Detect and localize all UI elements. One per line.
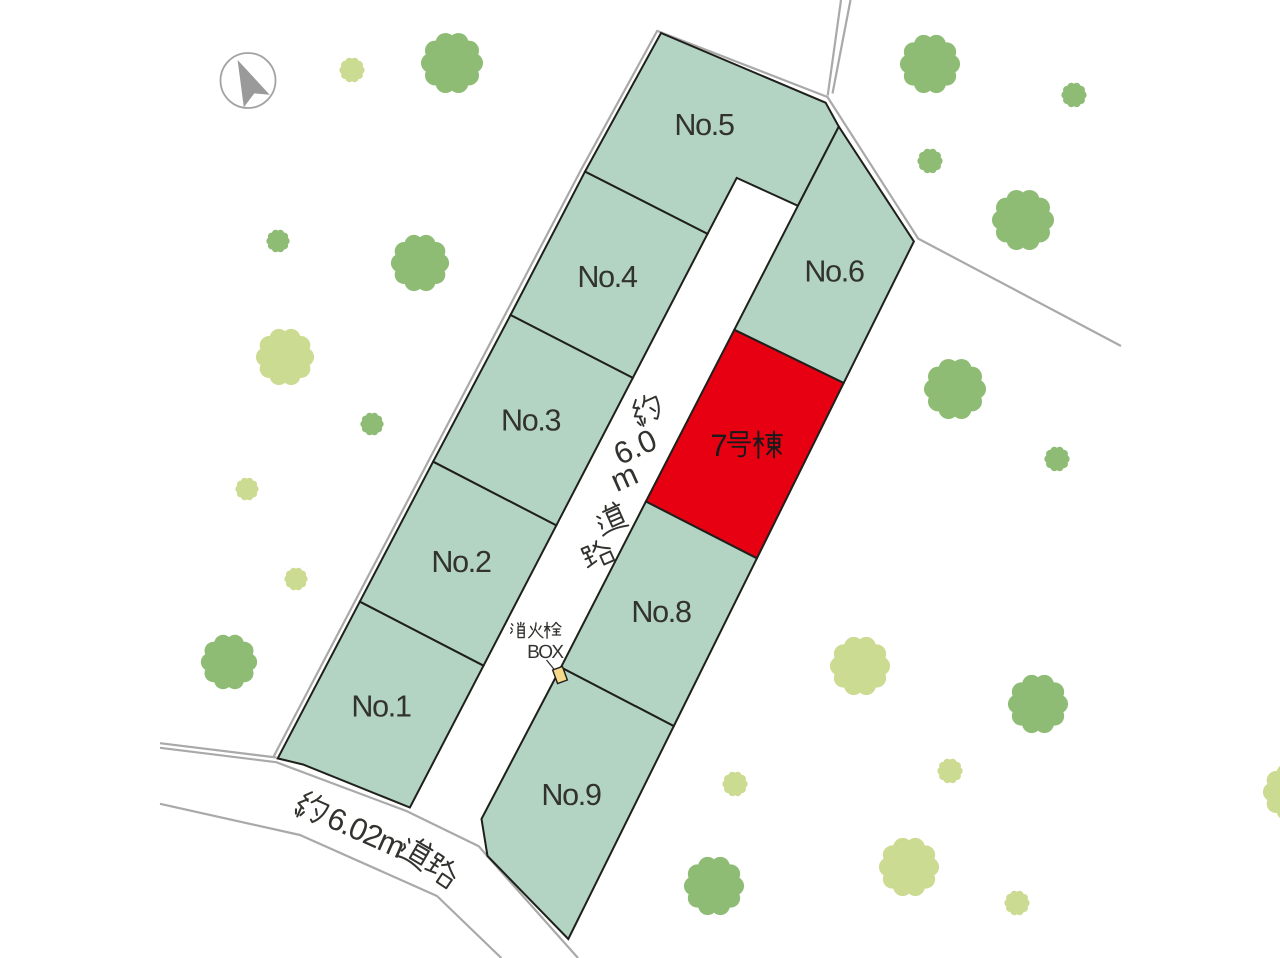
svg-text:No.6: No.6 <box>804 254 864 288</box>
svg-text:No.9: No.9 <box>541 778 601 812</box>
svg-text:No.1: No.1 <box>351 690 411 724</box>
svg-text:No.4: No.4 <box>577 260 638 294</box>
svg-text:No.8: No.8 <box>631 595 691 629</box>
svg-text:No.2: No.2 <box>431 545 491 579</box>
svg-text:BOX: BOX <box>527 642 564 663</box>
svg-text:No.3: No.3 <box>501 404 561 438</box>
svg-text:7: 7 <box>710 428 727 463</box>
svg-text:No.5: No.5 <box>674 108 734 142</box>
